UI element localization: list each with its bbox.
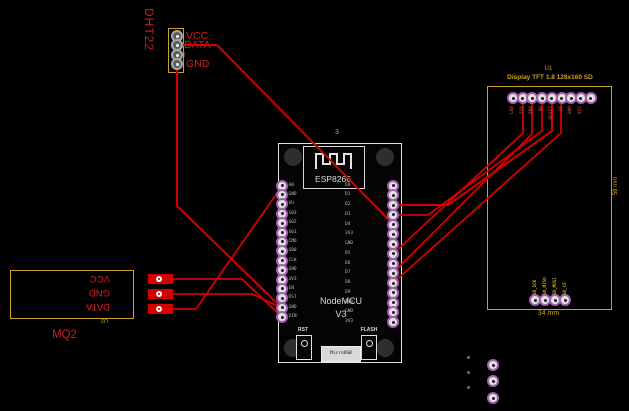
stray-pad-1[interactable] xyxy=(487,359,499,371)
nodemcu-left-pin-label-VU: VU xyxy=(289,201,294,207)
pad-layer: A0GNDVUS03S02S01CMDS00CLKGND3V3ENRSTGNDV… xyxy=(0,0,629,411)
nodemcu-right-pin-label-D7: D7 xyxy=(345,270,350,276)
display-top-pin-label-LED: LED xyxy=(509,106,517,136)
display-top-pin-label-SDA: SDA xyxy=(528,106,536,136)
drill-dot-1 xyxy=(467,356,470,359)
display-bottom-pin-label-SD_MISO: SD_MISO xyxy=(541,261,549,295)
pcb-canvas: DHT22 VCC DATA GND J4 VCC GND DATA U2 MQ… xyxy=(0,0,629,411)
nodemcu-right-pin-label-D2: D2 xyxy=(345,202,350,208)
stray-pad-3[interactable] xyxy=(487,392,499,404)
display-top-pin-label-GND: GND xyxy=(567,106,575,136)
mq2-pad-3[interactable] xyxy=(148,304,173,314)
nodemcu-right-pin-label-D9: D9 xyxy=(345,290,350,296)
nodemcu-left-pin-label-EN: EN xyxy=(289,286,294,292)
nodemcu-right-pin-label-3V3: 3V3 xyxy=(345,319,353,325)
nodemcu-left-pin-label-CLK: CLK xyxy=(289,258,297,264)
nodemcu-right-pin-label-3V3: 3V3 xyxy=(345,231,353,237)
nodemcu-left-pin-label-A0: A0 xyxy=(289,183,294,189)
drill-dot-2 xyxy=(467,371,470,374)
display-top-pin-label-SCK: SCK xyxy=(519,106,527,136)
nodemcu-left-pin-label-S03: S03 xyxy=(289,211,297,217)
display-top-pin-label-RESET: RESET xyxy=(548,106,556,136)
nodemcu-right-pin-label-D0: D0 xyxy=(345,183,350,189)
display-top-pin-label-A0: A0 xyxy=(538,106,546,136)
display-top-pin-label-CS: CS xyxy=(558,106,566,136)
nodemcu-left-pad-VIN[interactable] xyxy=(276,311,288,323)
display-bottom-pin-label-SD_SCK: SD_SCK xyxy=(531,261,539,295)
display-bottom-pin-label-SD_MOSI: SD_MOSI xyxy=(551,261,559,295)
nodemcu-right-pin-label-D6: D6 xyxy=(345,261,350,267)
nodemcu-left-pin-label-S00: S00 xyxy=(289,248,297,254)
mq2-pad-1[interactable] xyxy=(148,274,173,284)
nodemcu-left-pin-label-S01: S01 xyxy=(289,230,297,236)
nodemcu-left-pin-label-RST: RST xyxy=(289,295,297,301)
nodemcu-left-pin-label-CMD: CMD xyxy=(289,239,297,245)
nodemcu-left-pin-label-S02: S02 xyxy=(289,220,297,226)
nodemcu-right-pin-label-GND: GND xyxy=(345,241,353,247)
mq2-pad-2[interactable] xyxy=(148,289,173,299)
nodemcu-left-pin-label-VIN: VIN xyxy=(289,314,297,320)
nodemcu-right-pin-label-GND: GND xyxy=(345,309,353,315)
nodemcu-right-pad-3V3[interactable] xyxy=(387,316,399,328)
display-top-pad-nc8[interactable] xyxy=(585,92,597,104)
nodemcu-left-pin-label-GND: GND xyxy=(289,267,297,273)
display-bottom-pad-SD_CS[interactable] xyxy=(559,294,571,306)
display-bottom-pin-label-SD_CS: SD_CS xyxy=(561,261,569,295)
nodemcu-left-pin-label-3V3: 3V3 xyxy=(289,277,297,283)
nodemcu-right-pin-label-D5: D5 xyxy=(345,251,350,257)
dht22-pad-4[interactable] xyxy=(171,58,183,70)
nodemcu-left-pin-label-GND: GND xyxy=(289,305,297,311)
nodemcu-right-pin-label-D8: D8 xyxy=(345,280,350,286)
drill-dot-3 xyxy=(467,386,470,389)
nodemcu-left-pin-label-GND: GND xyxy=(289,192,297,198)
nodemcu-right-pin-label-D1: D1 xyxy=(345,192,350,198)
nodemcu-right-pin-label-D10: D10 xyxy=(345,300,353,306)
nodemcu-right-pin-label-D3: D3 xyxy=(345,212,350,218)
nodemcu-right-pin-label-D4: D4 xyxy=(345,222,350,228)
display-top-pin-label-VCC: VCC xyxy=(577,106,585,136)
stray-pad-2[interactable] xyxy=(487,375,499,387)
